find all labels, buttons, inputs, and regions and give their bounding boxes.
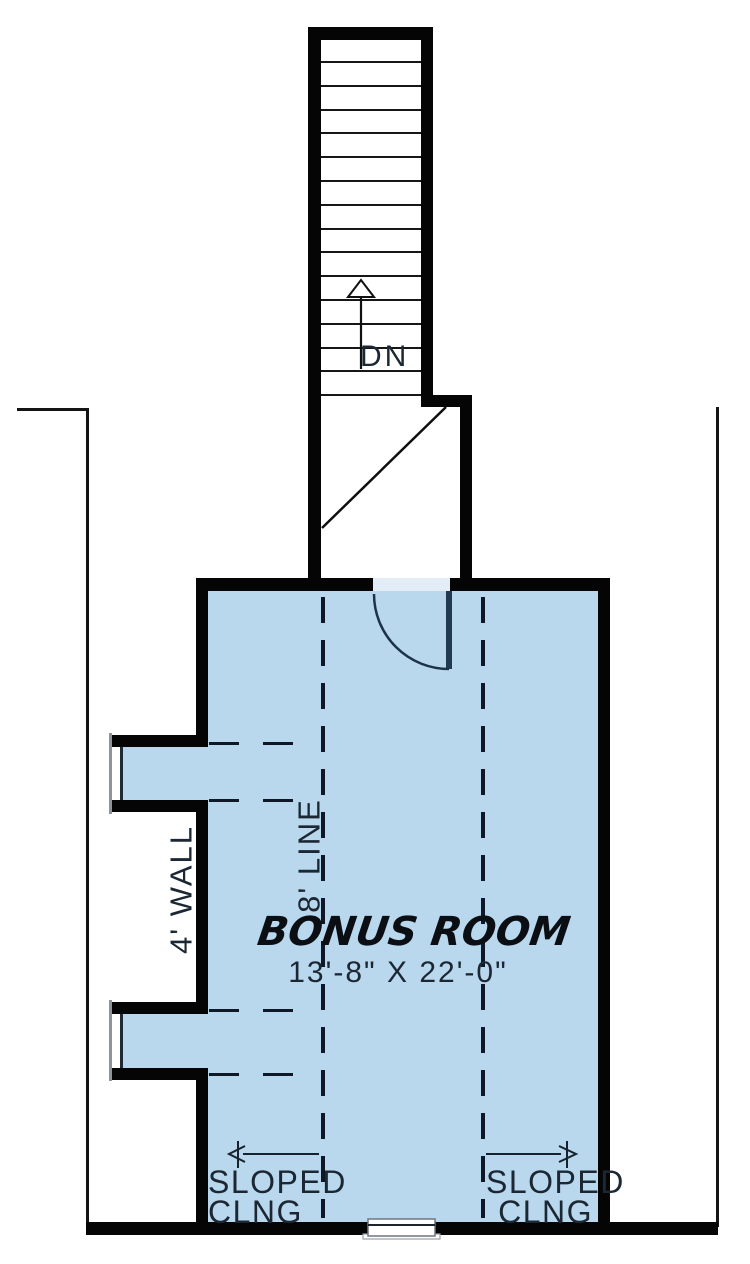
- stair-break-line: [322, 407, 446, 528]
- floor-plan-canvas: DN BONUS ROOM 13'-8" X 22'-0" 8' LINE 4'…: [0, 0, 750, 1264]
- sloped-label-left-line2: CLNG: [208, 1196, 303, 1228]
- door-swing-arc: [374, 594, 449, 669]
- four-foot-wall-label: 4' WALL: [166, 815, 197, 965]
- eight-foot-line-label: 8' LINE: [294, 786, 325, 926]
- vector-overlay: [0, 0, 750, 1264]
- dn-label: DN: [360, 342, 409, 372]
- bottom-window: [368, 1219, 435, 1236]
- stair-direction-arrowhead: [348, 280, 374, 297]
- room-dimensions-label: 13'-8" X 22'-0": [248, 958, 548, 988]
- sloped-label-right-line2: CLNG: [486, 1196, 593, 1228]
